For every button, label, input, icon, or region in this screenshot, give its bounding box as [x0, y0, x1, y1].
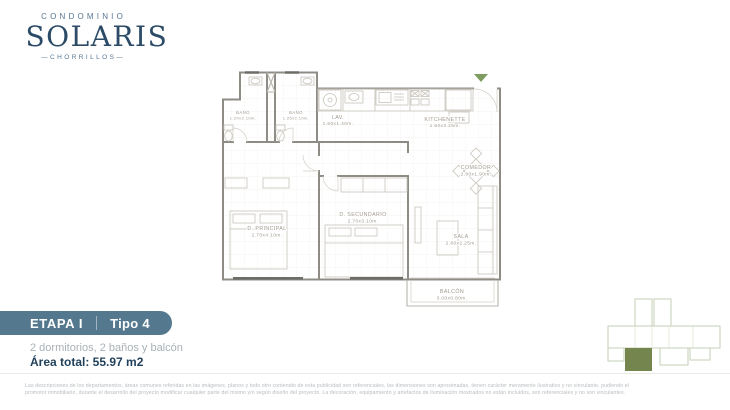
room-dims-sala: 2.80x2.25m. — [446, 241, 477, 247]
room-dims-bano-1: 1.20x2.10m. — [230, 116, 256, 121]
tipo-label: Tipo 4 — [110, 316, 150, 331]
floor-plan: BAÑO 1.20x2.10m. BAÑO 1.25x2.10m. LAV. 1… — [205, 58, 515, 320]
highlighted-unit — [625, 348, 652, 371]
room-label-bano-2: BAÑO — [289, 110, 303, 115]
room-label-lav: LAV. — [332, 115, 344, 121]
building-key-plan — [605, 293, 723, 373]
unit-features: 2 dormitorios, 2 baños y balcón — [30, 342, 183, 354]
room-label-bano-1: BAÑO — [236, 110, 250, 115]
room-label-comedor: COMEDOR — [461, 165, 491, 171]
room-dims-bano-2: 1.25x2.10m. — [283, 116, 309, 121]
brand-logo: CONDOMINIO SOLARIS —CHORRILLOS— — [24, 12, 140, 61]
unit-area-total: Área total: 55.97 m2 — [30, 355, 143, 369]
logo-solaris-text: SOLARIS — [24, 22, 140, 52]
disclaimer-line-1: Las descripciones de los departamentos, … — [25, 383, 629, 389]
room-dims-principal: 2.70x4.10m. — [252, 233, 283, 239]
room-dims-secundario: 2.70x3.10m. — [348, 219, 379, 225]
room-label-principal: D. PRINCIPAL — [247, 226, 286, 232]
disclaimer-line-2: promotor inmobiliario, durante el desarr… — [25, 390, 625, 396]
entry-arrow-icon — [474, 74, 488, 82]
logo-chorrillos-text: —CHORRILLOS— — [24, 54, 140, 61]
room-dims-lav: 1.60x1.40m. — [323, 121, 354, 127]
room-label-secundario: D. SECUNDARIO — [339, 212, 386, 218]
etapa-tipo-badge: ETAPA I Tipo 4 — [0, 311, 172, 335]
room-label-balcon: BALCÓN — [440, 288, 464, 295]
room-dims-comedor: 2.80x1.90m. — [461, 172, 492, 178]
flyer-page: CONDOMINIO SOLARIS —CHORRILLOS— — [0, 0, 730, 410]
etapa-label: ETAPA I — [30, 316, 83, 331]
room-dims-kitchenette: 1.60x3.25m. — [430, 123, 461, 129]
badge-divider — [96, 316, 97, 330]
room-label-kitchenette: KITCHENETTE — [424, 117, 465, 123]
footer-divider — [0, 373, 730, 374]
room-dims-balcon: 3.00x0.80m. — [437, 296, 468, 302]
room-label-sala: SALA — [453, 234, 468, 240]
